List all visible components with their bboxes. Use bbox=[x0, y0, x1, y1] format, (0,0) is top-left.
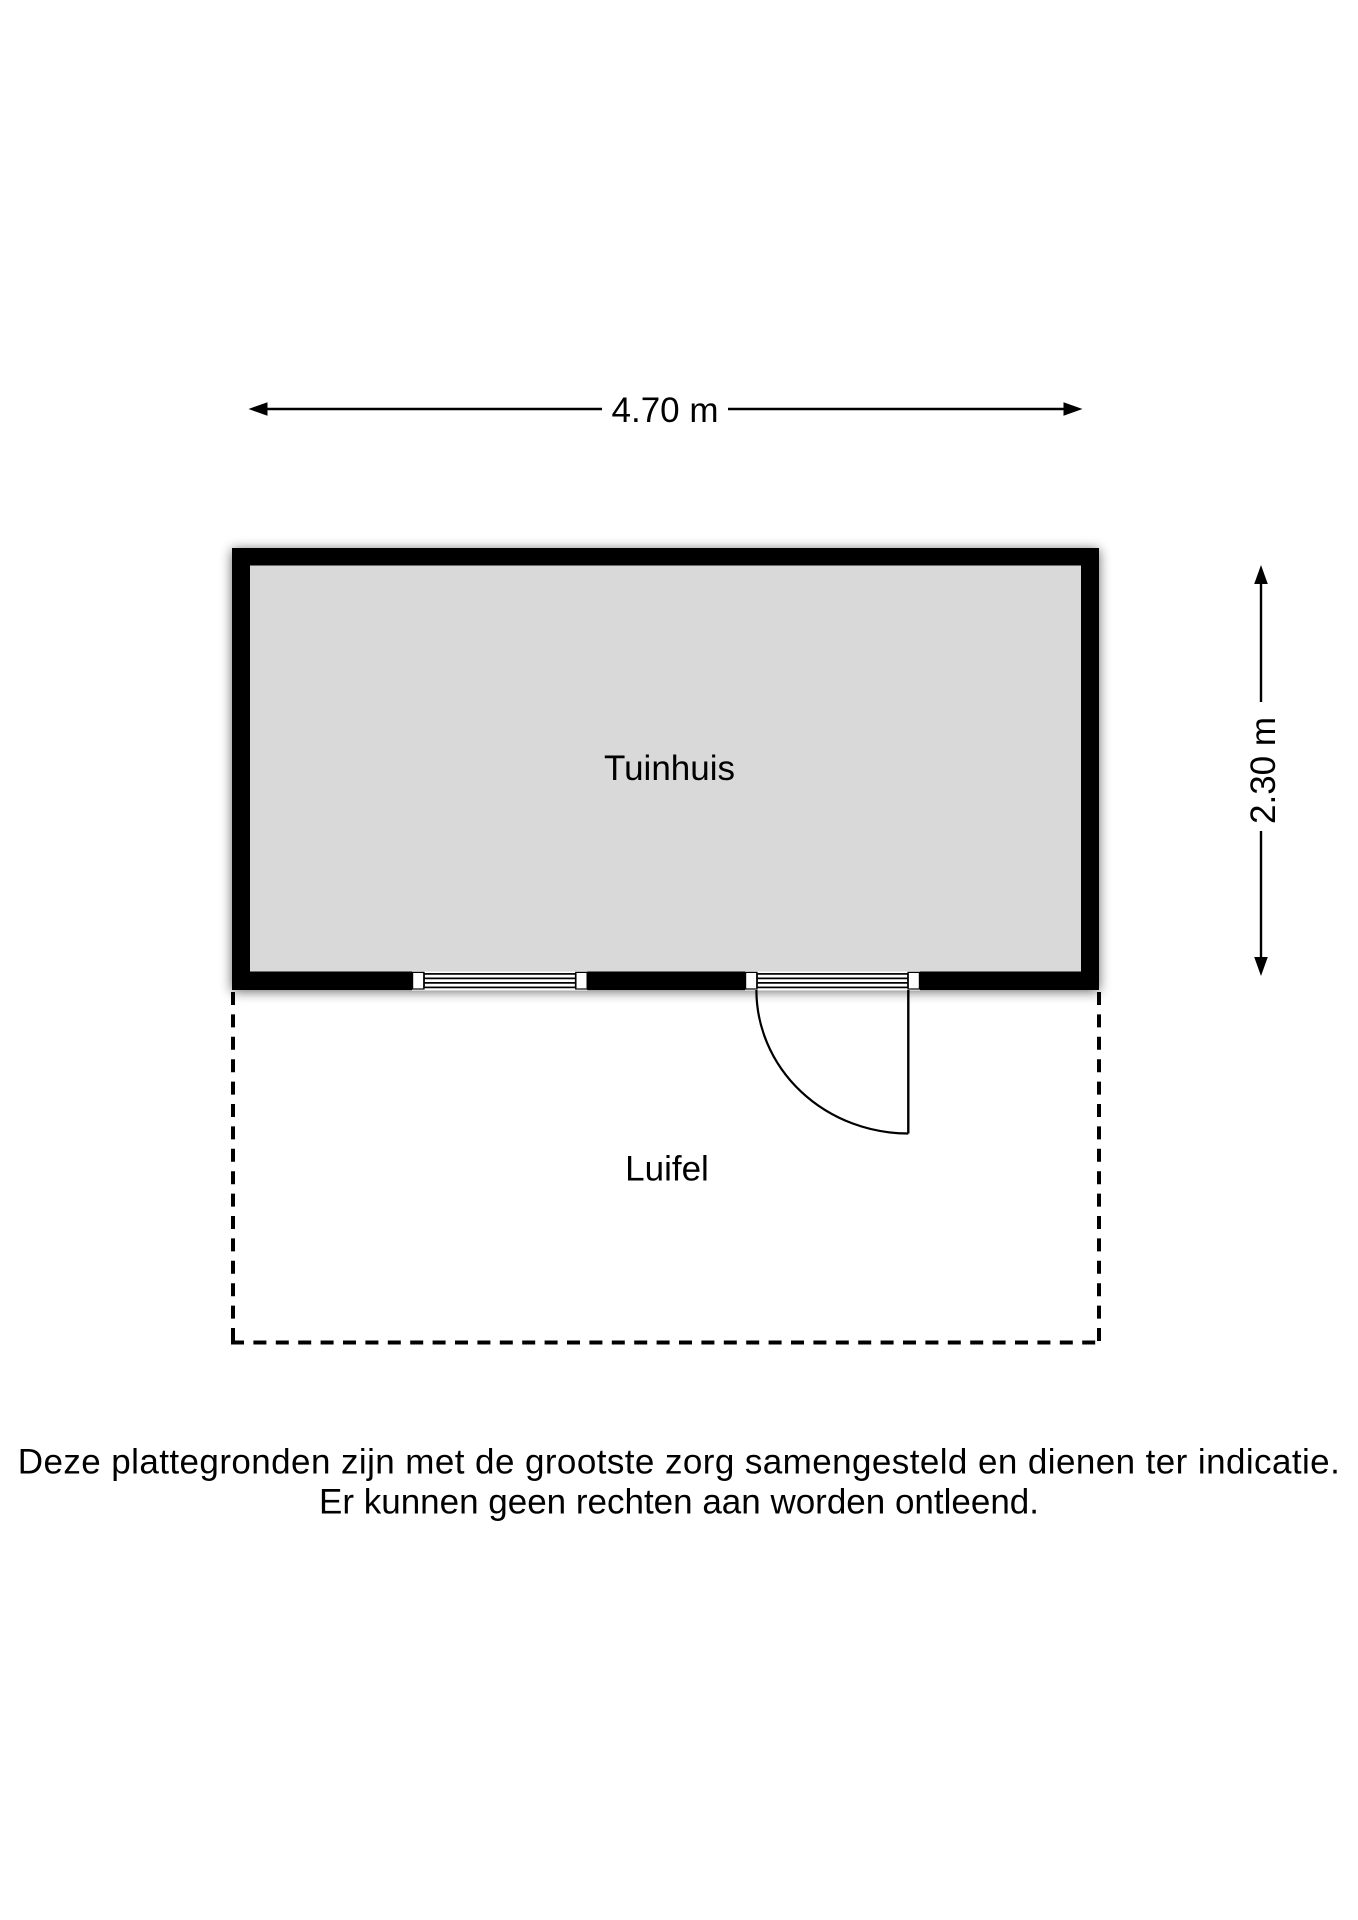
svg-text:Tuinhuis: Tuinhuis bbox=[604, 749, 735, 788]
svg-text:4.70 m: 4.70 m bbox=[612, 391, 719, 430]
svg-text:Er kunnen geen rechten aan wor: Er kunnen geen rechten aan worden ontlee… bbox=[319, 1483, 1039, 1522]
svg-text:2.30 m: 2.30 m bbox=[1244, 717, 1283, 824]
svg-text:Deze plattegronden zijn met de: Deze plattegronden zijn met de grootste … bbox=[18, 1443, 1340, 1482]
svg-text:Luifel: Luifel bbox=[625, 1150, 709, 1189]
